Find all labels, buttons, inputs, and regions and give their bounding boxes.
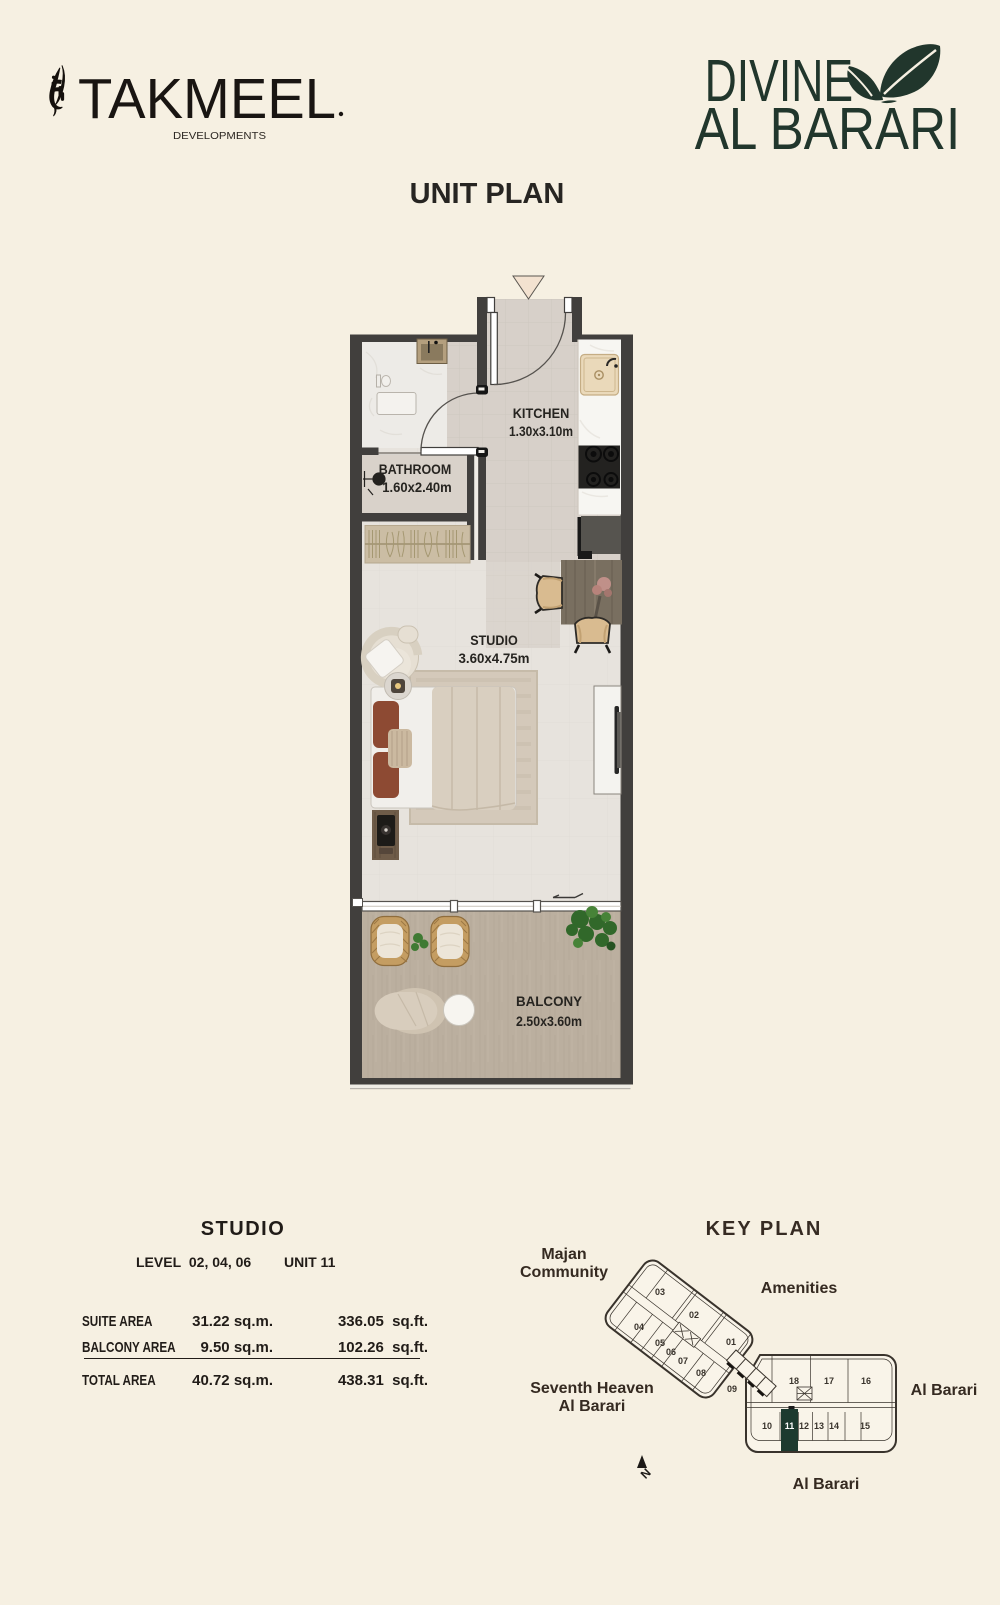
svg-text:08: 08 <box>696 1368 706 1378</box>
svg-text:12: 12 <box>799 1421 809 1431</box>
svg-text:10: 10 <box>762 1421 772 1431</box>
svg-text:3.60x4.75m: 3.60x4.75m <box>459 651 530 666</box>
svg-text:1.60x2.40m: 1.60x2.40m <box>382 480 452 495</box>
svg-text:11: 11 <box>785 1421 795 1431</box>
svg-text:N: N <box>638 1466 654 1482</box>
svg-text:07: 07 <box>678 1356 688 1366</box>
svg-text:AL BARARI: AL BARARI <box>695 96 961 158</box>
svg-text:03: 03 <box>655 1287 665 1297</box>
svg-text:05: 05 <box>655 1338 665 1348</box>
svg-text:06: 06 <box>666 1347 676 1357</box>
svg-text:KITCHEN: KITCHEN <box>513 406 570 421</box>
svg-text:04: 04 <box>634 1322 644 1332</box>
svg-text:STUDIO: STUDIO <box>470 633 518 648</box>
svg-text:TAKMEEL: TAKMEEL <box>78 67 336 131</box>
svg-text:BATHROOM: BATHROOM <box>379 462 452 477</box>
svg-text:02: 02 <box>689 1310 699 1320</box>
svg-text:13: 13 <box>814 1421 824 1431</box>
svg-text:17: 17 <box>824 1376 834 1386</box>
svg-text:2.50x3.60m: 2.50x3.60m <box>516 1014 582 1029</box>
svg-text:09: 09 <box>727 1384 737 1394</box>
svg-text:18: 18 <box>789 1376 799 1386</box>
svg-text:01: 01 <box>726 1337 736 1347</box>
svg-text:15: 15 <box>860 1421 870 1431</box>
svg-text:DEVELOPMENTS: DEVELOPMENTS <box>173 130 266 142</box>
svg-text:BALCONY: BALCONY <box>516 994 582 1009</box>
svg-text:14: 14 <box>829 1421 839 1431</box>
svg-text:1.30x3.10m: 1.30x3.10m <box>509 424 573 439</box>
